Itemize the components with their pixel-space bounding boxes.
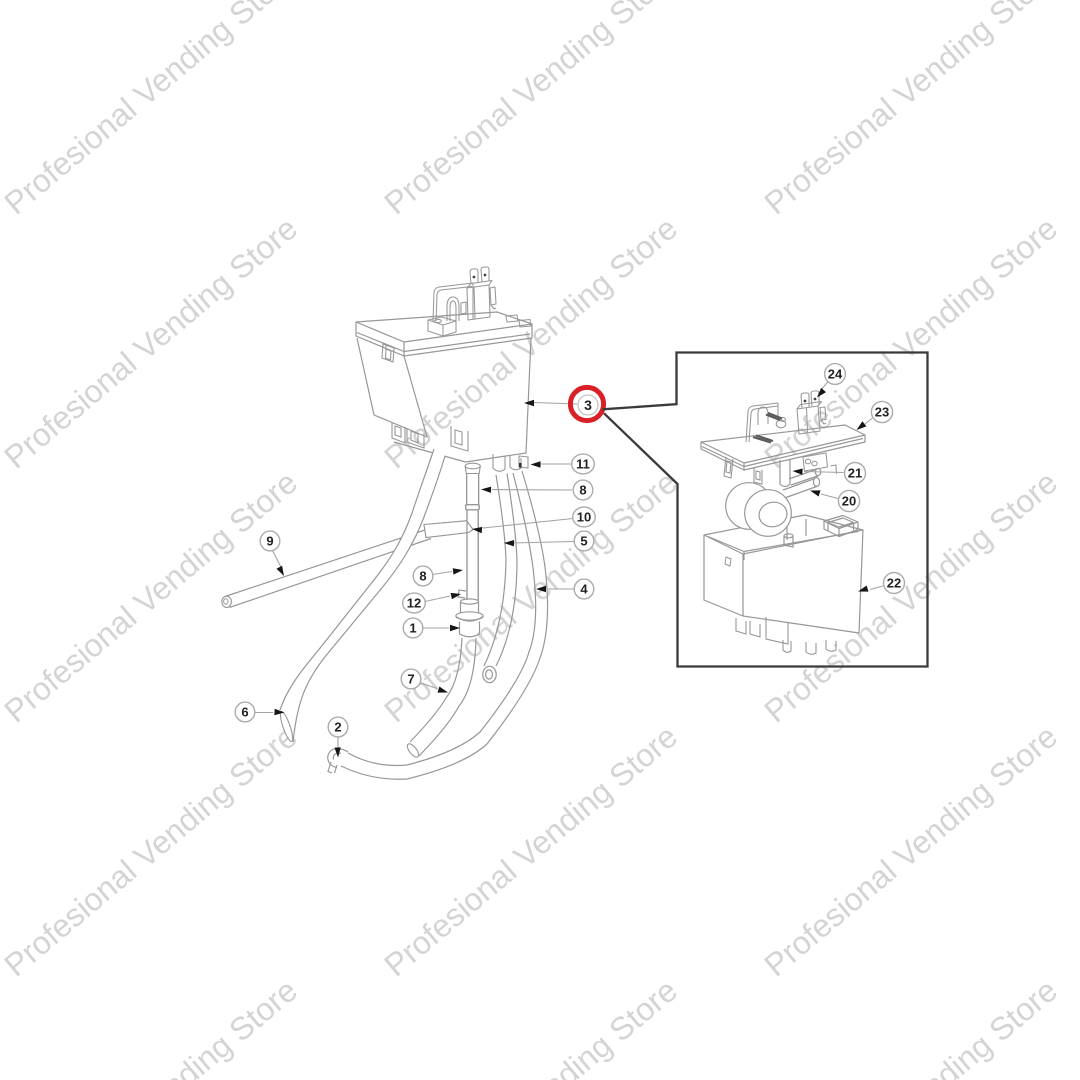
svg-text:6: 6: [241, 705, 248, 720]
svg-text:12: 12: [407, 596, 421, 611]
svg-text:23: 23: [875, 405, 889, 420]
svg-text:8: 8: [579, 483, 586, 498]
svg-text:2: 2: [334, 720, 341, 735]
svg-text:10: 10: [577, 510, 591, 525]
svg-text:5: 5: [580, 534, 587, 549]
svg-text:9: 9: [266, 534, 273, 549]
svg-text:3: 3: [584, 397, 592, 413]
svg-text:4: 4: [580, 582, 588, 597]
svg-text:24: 24: [828, 367, 843, 382]
svg-text:1: 1: [409, 621, 416, 636]
svg-text:8: 8: [419, 569, 426, 584]
svg-text:22: 22: [887, 576, 901, 591]
svg-text:21: 21: [848, 466, 862, 481]
svg-text:11: 11: [576, 457, 590, 472]
svg-text:20: 20: [842, 494, 856, 509]
svg-text:7: 7: [407, 672, 414, 687]
